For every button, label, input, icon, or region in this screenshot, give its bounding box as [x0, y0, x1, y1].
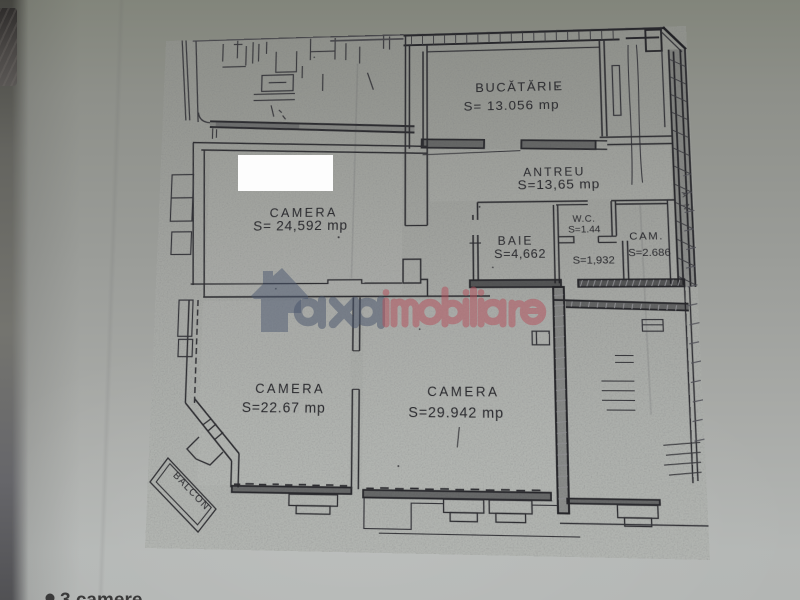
- svg-text:3 camere: 3 camere: [60, 590, 142, 600]
